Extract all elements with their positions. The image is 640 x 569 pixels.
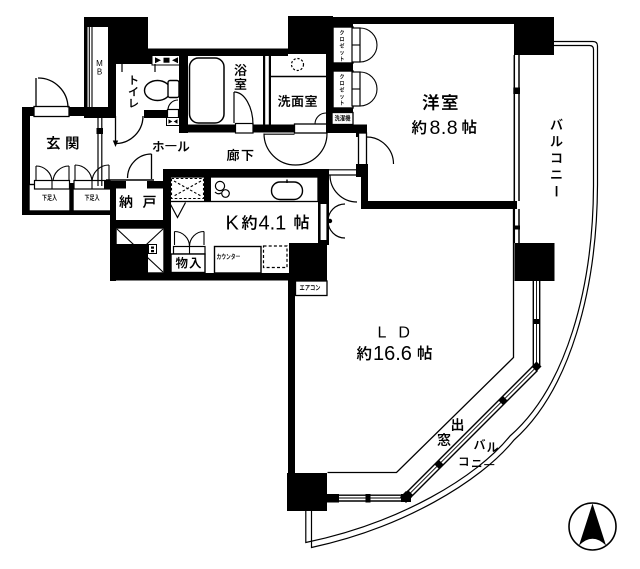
svg-text:B: B: [97, 68, 102, 77]
svg-text:4.1: 4.1: [259, 213, 287, 235]
svg-text:LD: LD: [378, 325, 422, 342]
svg-text:K: K: [226, 213, 240, 235]
svg-text:8.8: 8.8: [430, 117, 459, 139]
svg-text:16.6: 16.6: [373, 343, 412, 365]
